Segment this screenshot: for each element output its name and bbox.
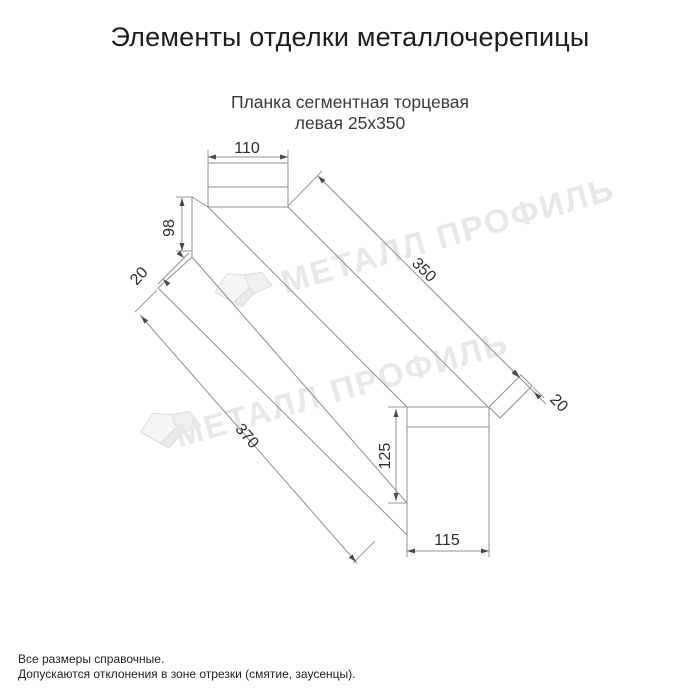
- dimension-125: 125: [377, 407, 407, 503]
- dim-label-115: 115: [434, 532, 460, 549]
- dim-label-350: 350: [408, 255, 439, 286]
- product-name-line1: Планка сегментная торцевая: [0, 92, 700, 113]
- dimension-20-right: 20: [513, 371, 572, 416]
- dim-label-125: 125: [377, 443, 394, 470]
- dimension-370: 370: [135, 290, 375, 563]
- dimension-110: 110: [208, 140, 288, 162]
- bottom-end-cap: [407, 375, 532, 557]
- product-name: Планка сегментная торцевая левая 25х350: [0, 92, 700, 134]
- dimension-20-left: 20: [127, 251, 189, 289]
- page-title: Элементы отделки металлочерепицы: [0, 22, 700, 53]
- page: МЕТАЛЛ ПРОФИЛЬ МЕТАЛЛ ПРОФИЛЬ: [0, 0, 700, 700]
- dimension-98: 98: [161, 197, 193, 251]
- product-name-line2: левая 25х350: [0, 113, 700, 134]
- dim-label-98: 98: [161, 219, 178, 237]
- dim-label-20-left: 20: [127, 264, 152, 289]
- footnote-line1: Все размеры справочные.: [18, 652, 355, 667]
- dimension-350: 350: [288, 171, 519, 377]
- footnotes: Все размеры справочные. Допускаются откл…: [18, 652, 355, 681]
- strip-body-lines: [158, 207, 488, 535]
- dim-label-110: 110: [234, 140, 260, 157]
- dim-label-20-right: 20: [546, 391, 571, 416]
- footnote-line2: Допускаются отклонения в зоне отрезки (с…: [18, 667, 355, 682]
- dimension-115: 115: [407, 532, 489, 554]
